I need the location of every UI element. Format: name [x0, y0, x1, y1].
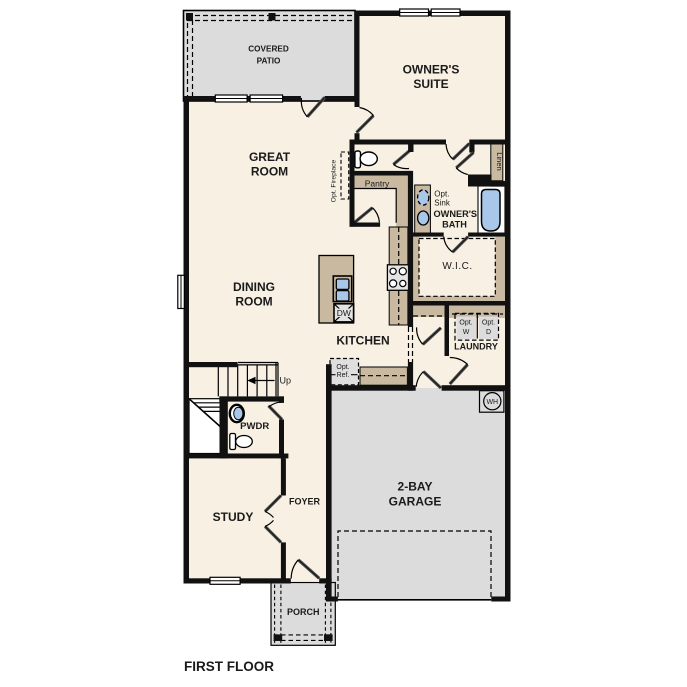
svg-text:GARAGE: GARAGE [389, 495, 442, 509]
svg-text:PORCH: PORCH [287, 607, 320, 617]
svg-text:Linen: Linen [495, 152, 504, 170]
svg-text:DINING: DINING [233, 280, 275, 294]
svg-text:Sink: Sink [434, 199, 451, 208]
svg-text:D: D [486, 329, 491, 336]
svg-text:Opt. Fireplace: Opt. Fireplace [331, 159, 338, 202]
svg-text:SUITE: SUITE [413, 77, 448, 91]
svg-text:DW: DW [337, 308, 351, 318]
svg-text:FOYER: FOYER [289, 497, 321, 507]
svg-text:Pantry: Pantry [365, 179, 390, 189]
svg-text:Opt.: Opt. [336, 364, 349, 371]
svg-text:Opt.: Opt. [482, 320, 495, 327]
svg-text:FIRST FLOOR: FIRST FLOOR [184, 659, 274, 674]
svg-text:BATH: BATH [442, 219, 467, 229]
svg-text:ROOM: ROOM [251, 165, 288, 179]
svg-text:W: W [463, 329, 470, 336]
svg-text:Up: Up [280, 376, 292, 386]
svg-text:ROOM: ROOM [235, 295, 272, 309]
svg-text:Ref.: Ref. [337, 372, 350, 379]
svg-text:Opt.: Opt. [434, 190, 449, 199]
svg-text:PWDR: PWDR [240, 421, 269, 432]
svg-text:COVERED: COVERED [248, 45, 289, 54]
svg-text:GREAT: GREAT [249, 150, 291, 164]
svg-text:OWNER'S: OWNER'S [403, 63, 460, 77]
svg-text:STUDY: STUDY [213, 510, 254, 524]
svg-text:LAUNDRY: LAUNDRY [454, 342, 498, 352]
svg-text:OWNER'S: OWNER'S [434, 209, 478, 219]
svg-text:Opt.: Opt. [459, 320, 472, 327]
svg-text:PATIO: PATIO [257, 57, 281, 66]
svg-text:2-BAY: 2-BAY [398, 480, 433, 494]
svg-text:WH: WH [486, 399, 498, 406]
svg-text:W.I.C.: W.I.C. [442, 261, 472, 272]
svg-text:KITCHEN: KITCHEN [336, 334, 389, 348]
